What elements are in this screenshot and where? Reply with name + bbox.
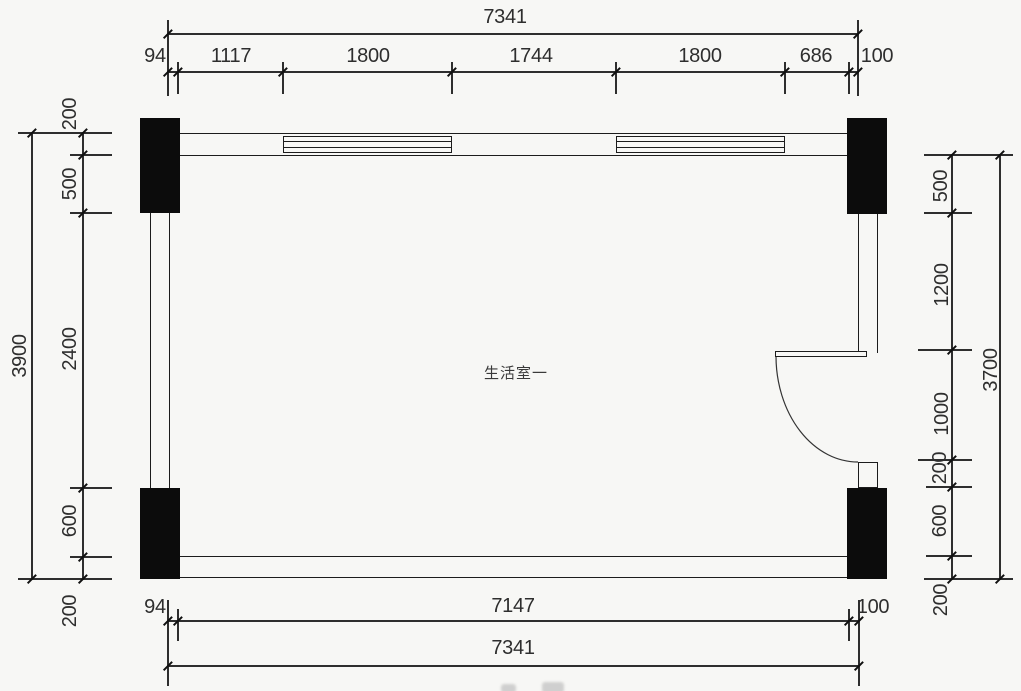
dim-label-left-600: 600 xyxy=(59,479,81,563)
dim-label-top-overall: 7341 xyxy=(463,6,547,28)
cropped-caption-mark xyxy=(501,684,516,691)
dim-line-bottom-overall xyxy=(168,665,859,666)
window-pane-line xyxy=(284,147,451,148)
dim-extension-line xyxy=(918,349,972,350)
bottom-wall xyxy=(180,556,847,578)
window-right xyxy=(616,136,785,153)
column-bottom-right xyxy=(847,488,887,579)
room-label: 生活室一 xyxy=(431,364,601,384)
window-pane-line xyxy=(284,141,451,142)
dim-label-left-500: 500 xyxy=(59,142,81,226)
dim-label-top-1800a: 1800 xyxy=(326,45,410,67)
window-pane-line xyxy=(617,147,784,148)
column-top-left xyxy=(140,118,180,213)
column-bottom-left xyxy=(140,488,180,579)
door-leaf xyxy=(775,351,867,358)
cropped-caption-mark xyxy=(542,682,564,691)
window-left xyxy=(283,136,452,153)
dim-line-bottom-segments xyxy=(168,620,859,621)
dim-label-left-200b: 200 xyxy=(59,569,81,653)
dim-label-bottom-100: 100 xyxy=(831,596,915,618)
dim-label-right-500: 500 xyxy=(930,144,952,228)
door-swing-arc xyxy=(770,353,865,465)
dim-line-left-segments xyxy=(82,133,83,579)
dim-extension-line xyxy=(451,62,452,94)
dim-label-right-overall: 3700 xyxy=(980,328,1002,412)
dim-line-top-overall xyxy=(168,33,859,34)
floor-plan-canvas: 7341 94 1117 1800 1744 1800 686 100 94 7… xyxy=(0,0,1021,691)
left-wall xyxy=(150,213,171,488)
window-pane-line xyxy=(617,141,784,142)
column-top-right xyxy=(847,118,887,214)
dim-label-right-200b: 200 xyxy=(930,558,952,642)
dim-extension-line xyxy=(615,62,616,94)
dim-label-top-1117: 1117 xyxy=(189,45,273,67)
dim-label-bottom-94: 94 xyxy=(113,596,197,618)
dim-label-top-100: 100 xyxy=(835,45,919,67)
dim-label-top-94: 94 xyxy=(113,45,197,67)
dim-label-top-1744: 1744 xyxy=(489,45,573,67)
dim-line-top-segments xyxy=(168,71,859,72)
dim-label-right-600: 600 xyxy=(929,479,951,563)
dim-label-left-2400: 2400 xyxy=(59,307,81,391)
dim-label-right-1200: 1200 xyxy=(931,243,953,327)
dim-label-top-1800b: 1800 xyxy=(658,45,742,67)
dim-label-bottom-7147: 7147 xyxy=(471,595,555,617)
dim-label-bottom-overall: 7341 xyxy=(471,637,555,659)
dim-line-left-overall xyxy=(31,133,32,579)
door-jamb xyxy=(858,462,878,488)
dim-extension-line xyxy=(282,62,283,94)
dim-label-left-overall: 3900 xyxy=(9,314,31,398)
right-wall-upper xyxy=(858,214,878,353)
